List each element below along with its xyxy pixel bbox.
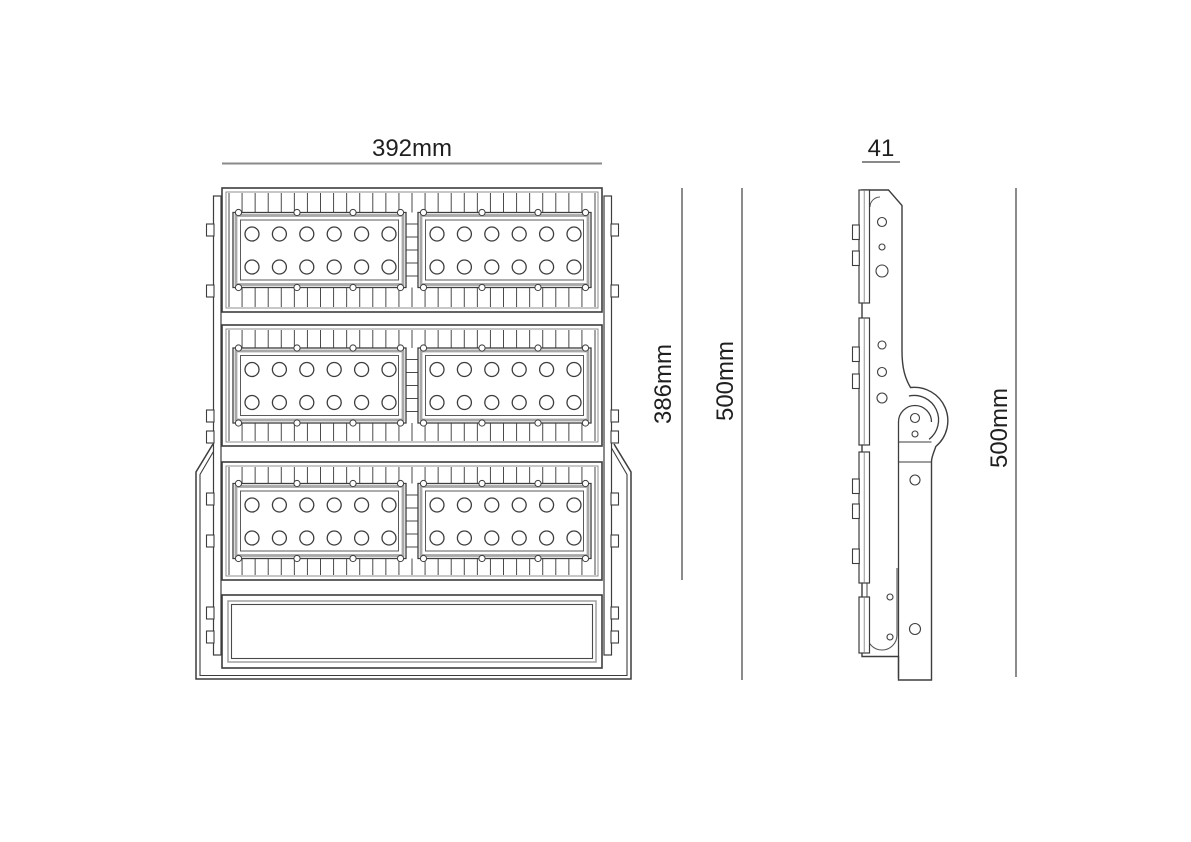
panel-screw	[582, 420, 588, 426]
led	[485, 260, 499, 274]
led	[327, 260, 341, 274]
panel-screw	[582, 555, 588, 561]
led	[540, 498, 554, 512]
led	[327, 531, 341, 545]
led	[540, 396, 554, 410]
panel-screw	[420, 209, 426, 215]
rail-tab	[207, 493, 215, 505]
panel-screw	[294, 555, 300, 561]
led	[382, 260, 396, 274]
panel-screw	[397, 420, 403, 426]
led	[512, 396, 526, 410]
rail-tab	[207, 224, 215, 236]
rail-tab	[207, 607, 215, 619]
led	[540, 260, 554, 274]
hole	[911, 414, 920, 423]
led-module	[222, 462, 602, 580]
led	[272, 498, 286, 512]
panel-screw	[535, 420, 541, 426]
led	[430, 227, 444, 241]
led	[355, 260, 369, 274]
front-overall-height-dimension-label: 500mm	[712, 341, 739, 421]
panel-screw	[350, 480, 356, 486]
edge-tab	[853, 347, 860, 362]
hole	[876, 265, 888, 277]
led	[382, 227, 396, 241]
led	[272, 363, 286, 377]
front-width-dimension-label: 392mm	[372, 135, 452, 162]
led	[245, 396, 259, 410]
led	[272, 531, 286, 545]
panel-screw	[479, 555, 485, 561]
led	[300, 498, 314, 512]
led	[355, 396, 369, 410]
led	[512, 363, 526, 377]
rail-tab	[611, 410, 619, 422]
led	[430, 531, 444, 545]
panel-screw	[294, 284, 300, 290]
rail-tab	[207, 285, 215, 297]
hole	[887, 594, 893, 600]
led	[540, 227, 554, 241]
panel-screw	[479, 284, 485, 290]
panel-screw	[479, 345, 485, 351]
panel-screw	[294, 345, 300, 351]
front-module-stack-dimension-label: 386mm	[650, 344, 677, 424]
left-rail	[214, 196, 222, 655]
panel-screw	[420, 420, 426, 426]
panel-screw	[535, 284, 541, 290]
rail-tab	[207, 410, 215, 422]
side-overall-height-dimension-label: 500mm	[986, 388, 1013, 468]
led	[327, 363, 341, 377]
led	[245, 531, 259, 545]
led-panel	[233, 345, 406, 426]
led	[382, 363, 396, 377]
body-edge-strip	[853, 190, 870, 653]
panel-screw	[350, 555, 356, 561]
led	[355, 363, 369, 377]
led	[485, 498, 499, 512]
hole	[878, 218, 887, 227]
panel-screw	[350, 284, 356, 290]
front-view	[196, 188, 631, 679]
panel-screw	[582, 480, 588, 486]
led	[567, 531, 581, 545]
led-panel	[233, 209, 406, 290]
panel-screw	[479, 209, 485, 215]
led	[245, 363, 259, 377]
rail-tab	[611, 431, 619, 443]
led	[300, 531, 314, 545]
led	[457, 363, 471, 377]
led	[512, 260, 526, 274]
led	[430, 396, 444, 410]
led	[355, 227, 369, 241]
led	[457, 531, 471, 545]
side-depth-dimension-label: 41	[868, 135, 895, 162]
led	[245, 227, 259, 241]
panel-screw	[535, 555, 541, 561]
led	[272, 227, 286, 241]
panel-screw	[235, 480, 241, 486]
led	[512, 531, 526, 545]
led	[567, 363, 581, 377]
panel-screw	[582, 345, 588, 351]
panel-screw	[294, 480, 300, 486]
rail-tab	[611, 535, 619, 547]
led	[485, 396, 499, 410]
led	[485, 227, 499, 241]
hole	[912, 431, 918, 437]
edge-tab	[853, 549, 860, 564]
led	[457, 498, 471, 512]
led-panel	[418, 345, 591, 426]
led	[567, 227, 581, 241]
edge-tab	[853, 374, 860, 389]
led	[327, 396, 341, 410]
led	[245, 498, 259, 512]
hole	[887, 634, 893, 640]
led	[300, 227, 314, 241]
panel-screw	[235, 284, 241, 290]
edge-tab	[853, 251, 860, 266]
rail-tab	[611, 224, 619, 236]
led	[327, 498, 341, 512]
led	[245, 260, 259, 274]
panel-screw	[397, 555, 403, 561]
panel-screw	[420, 284, 426, 290]
led	[382, 531, 396, 545]
led-module	[222, 325, 602, 446]
led	[430, 260, 444, 274]
page: { "title": "LED floodlight dimensioned t…	[0, 0, 1191, 842]
panel-screw	[350, 209, 356, 215]
edge-tab	[853, 225, 860, 240]
led-panel	[233, 480, 406, 561]
panel-screw	[420, 345, 426, 351]
driver-compartment	[222, 595, 602, 668]
technical-drawing: 392mm 386mm 500mm 41 500mm	[0, 0, 1191, 842]
rail-tab	[611, 493, 619, 505]
led	[355, 498, 369, 512]
led	[355, 531, 369, 545]
rail-tab	[611, 607, 619, 619]
panel-screw	[582, 209, 588, 215]
led-module	[222, 188, 602, 312]
panel-screw	[235, 555, 241, 561]
led	[327, 227, 341, 241]
rail-tab	[611, 285, 619, 297]
hole	[910, 624, 921, 635]
panel-screw	[397, 284, 403, 290]
led	[512, 227, 526, 241]
led	[300, 260, 314, 274]
led	[567, 260, 581, 274]
led	[540, 363, 554, 377]
led-panel	[418, 209, 591, 290]
rail-tab	[207, 631, 215, 643]
panel-screw	[350, 420, 356, 426]
mounting-bracket-side	[862, 190, 948, 680]
edge-tab	[853, 479, 860, 494]
panel-screw	[235, 345, 241, 351]
edge-tab	[853, 504, 860, 519]
panel-screw	[350, 345, 356, 351]
panel-screw	[294, 209, 300, 215]
right-rail	[604, 196, 612, 655]
panel-screw	[535, 480, 541, 486]
panel-screw	[397, 209, 403, 215]
hole	[878, 368, 887, 377]
panel-screw	[397, 480, 403, 486]
led	[457, 260, 471, 274]
led	[300, 396, 314, 410]
led	[567, 396, 581, 410]
led	[457, 396, 471, 410]
side-view	[853, 190, 948, 680]
panel-screw	[235, 420, 241, 426]
panel-screw	[582, 284, 588, 290]
led-panel	[418, 480, 591, 561]
panel-screw	[294, 420, 300, 426]
led	[382, 498, 396, 512]
led	[430, 363, 444, 377]
led	[485, 531, 499, 545]
led	[430, 498, 444, 512]
led	[272, 396, 286, 410]
panel-screw	[235, 209, 241, 215]
led	[485, 363, 499, 377]
led	[512, 498, 526, 512]
panel-screw	[479, 420, 485, 426]
rail-tab	[207, 535, 215, 547]
panel-screw	[535, 209, 541, 215]
hole	[878, 341, 886, 349]
led	[567, 498, 581, 512]
led	[457, 227, 471, 241]
led	[382, 396, 396, 410]
panel-screw	[535, 345, 541, 351]
led	[272, 260, 286, 274]
rail-tab	[207, 431, 215, 443]
panel-screw	[397, 345, 403, 351]
hole	[877, 393, 887, 403]
led	[300, 363, 314, 377]
hole	[879, 244, 885, 250]
hole	[910, 475, 920, 485]
led	[540, 531, 554, 545]
panel-screw	[420, 480, 426, 486]
panel-screw	[479, 480, 485, 486]
panel-screw	[420, 555, 426, 561]
rail-tab	[611, 631, 619, 643]
